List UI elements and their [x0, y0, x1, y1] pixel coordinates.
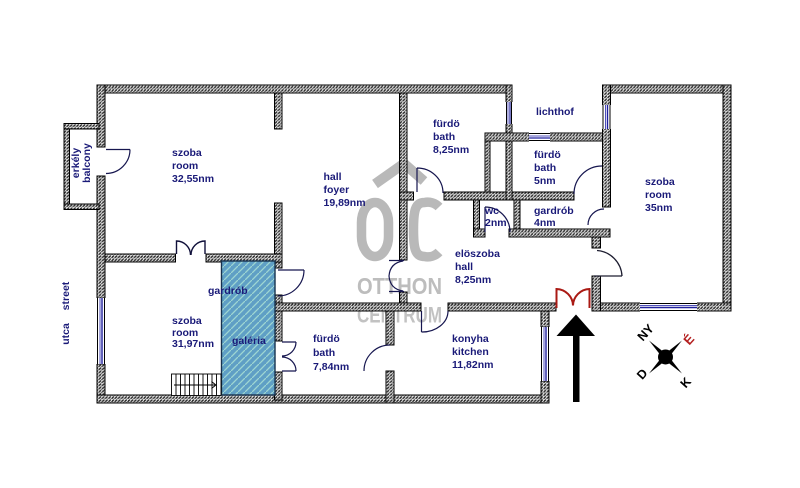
svg-text:street: street [60, 281, 72, 310]
svg-text:8,25nm: 8,25nm [455, 274, 491, 286]
svg-text:11,82nm: 11,82nm [452, 359, 493, 371]
svg-text:bath: bath [313, 347, 335, 359]
svg-text:fürdö: fürdö [433, 118, 460, 130]
svg-text:32,55nm: 32,55nm [172, 173, 214, 185]
svg-text:szoba: szoba [645, 176, 675, 188]
svg-text:4nm: 4nm [534, 217, 556, 229]
svg-text:fürdö: fürdö [534, 149, 561, 161]
svg-text:bath: bath [433, 131, 455, 143]
svg-text:fürdö: fürdö [313, 333, 340, 345]
svg-text:19,89nm: 19,89nm [324, 197, 366, 209]
svg-text:utca: utca [60, 323, 72, 345]
svg-text:konyha: konyha [452, 333, 489, 345]
svg-text:7,84nm: 7,84nm [313, 361, 349, 373]
svg-text:5nm: 5nm [534, 175, 556, 187]
svg-text:foyer: foyer [324, 184, 350, 196]
svg-text:8,25nm: 8,25nm [433, 144, 469, 156]
svg-text:gardrób: gardrób [208, 285, 248, 297]
svg-text:hall: hall [455, 261, 473, 273]
svg-text:lichthof: lichthof [536, 106, 574, 118]
svg-text:35nm: 35nm [645, 202, 672, 214]
svg-text:31,97nm: 31,97nm [172, 338, 214, 350]
svg-text:balcony: balcony [81, 143, 93, 183]
svg-text:szoba: szoba [172, 315, 202, 327]
svg-text:kitchen: kitchen [452, 346, 489, 358]
svg-text:szoba: szoba [172, 147, 202, 159]
svg-text:hall: hall [324, 171, 342, 183]
svg-text:room: room [172, 160, 198, 172]
svg-text:bath: bath [534, 162, 556, 174]
svg-text:elöszoba: elöszoba [455, 248, 500, 260]
svg-text:room: room [645, 189, 671, 201]
svg-text:2nm: 2nm [485, 217, 507, 229]
svg-text:galéria: galéria [232, 335, 266, 347]
svg-text:gardrób: gardrób [534, 205, 574, 217]
svg-text:wc: wc [484, 205, 499, 217]
